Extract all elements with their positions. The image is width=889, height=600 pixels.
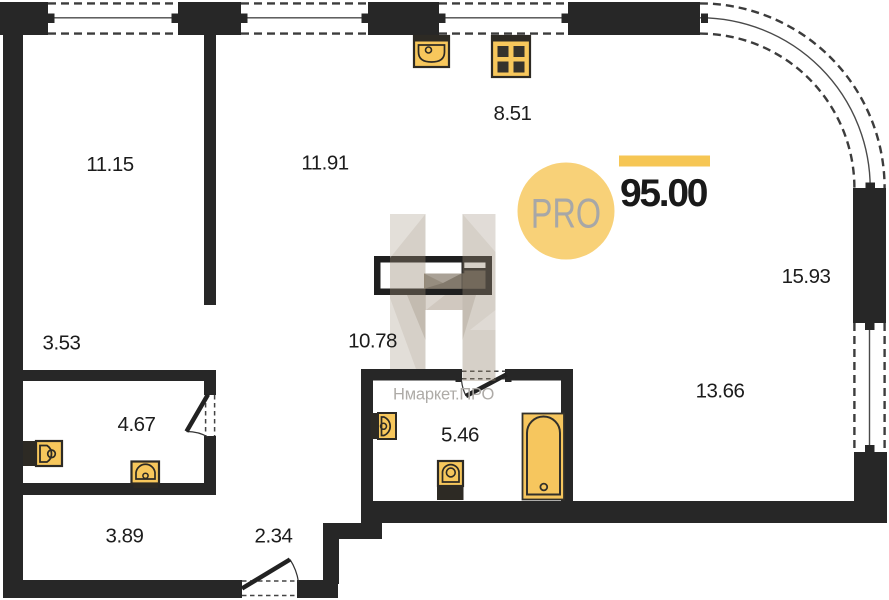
svg-text:5.46: 5.46 — [441, 424, 479, 447]
svg-text:10.78: 10.78 — [348, 330, 397, 353]
svg-text:PRO: PRO — [531, 190, 601, 237]
svg-text:4.67: 4.67 — [118, 413, 156, 436]
svg-text:15.93: 15.93 — [782, 265, 831, 288]
svg-text:8.51: 8.51 — [494, 102, 532, 125]
svg-text:2.34: 2.34 — [255, 525, 293, 548]
svg-text:13.66: 13.66 — [696, 380, 745, 403]
svg-text:95.00: 95.00 — [620, 172, 708, 215]
svg-text:Нмаркет.ПРО: Нмаркет.ПРО — [393, 386, 494, 404]
svg-text:3.89: 3.89 — [106, 525, 144, 548]
svg-text:11.15: 11.15 — [86, 153, 133, 176]
svg-text:11.91: 11.91 — [301, 152, 348, 175]
svg-text:3.53: 3.53 — [43, 332, 81, 355]
